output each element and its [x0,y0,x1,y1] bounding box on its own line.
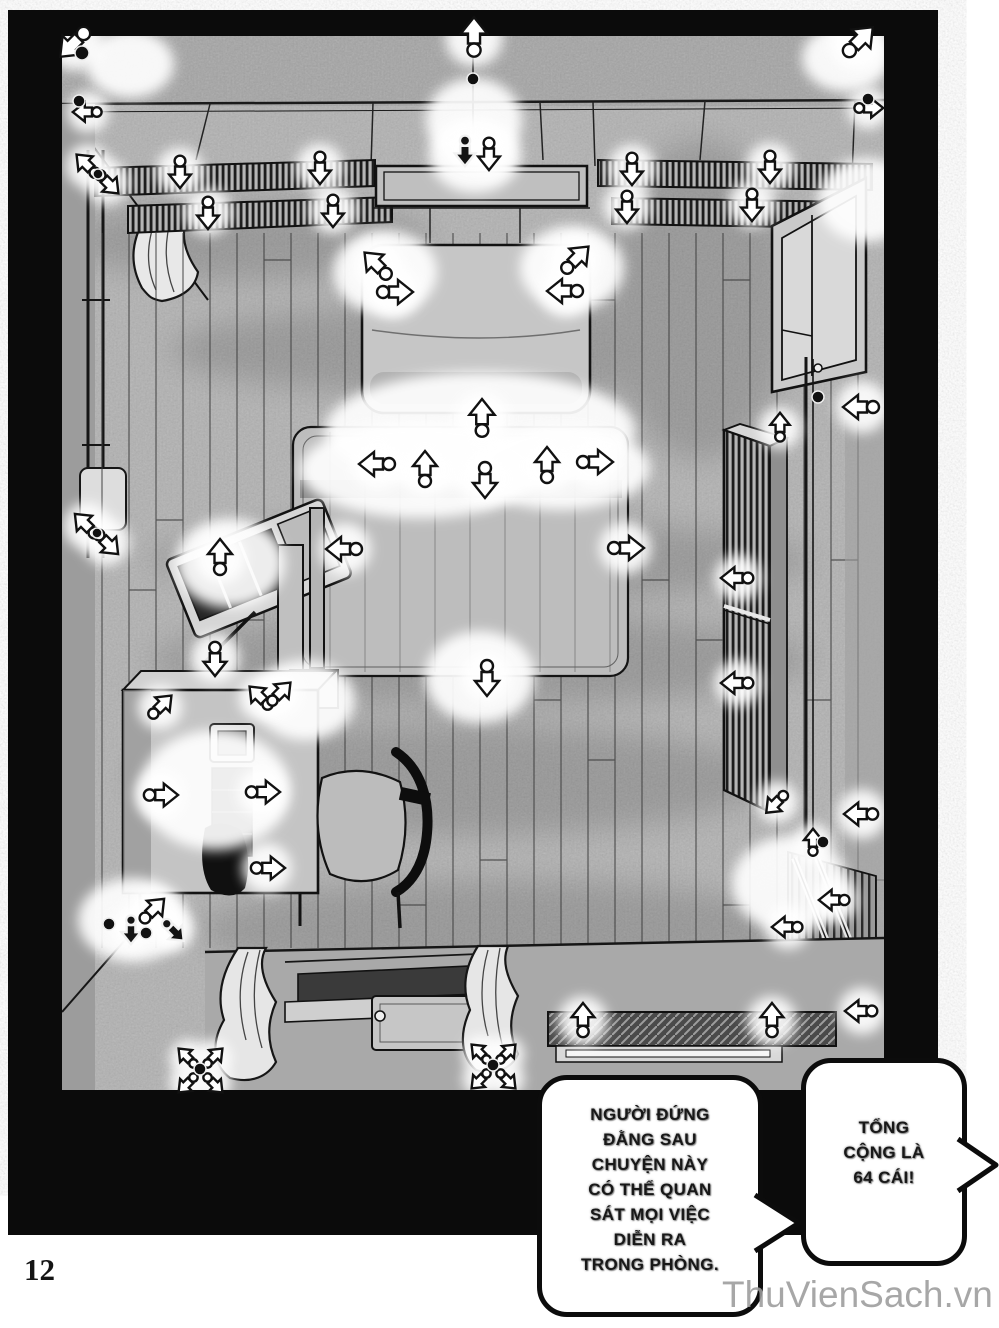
camera-dot [93,169,103,179]
bubble-text-line: 64 CÁI! [806,1165,962,1190]
page-number: 12 [24,1252,55,1288]
speech-bubble-right-text: TỔNG CỘNG LÀ 64 CÁI! [806,1063,962,1190]
bubble-text-line: NGƯỜI ĐỨNG [542,1102,758,1127]
camera-dot [487,1059,499,1071]
bubble-text-line: CÓ THỂ QUAN [542,1177,758,1202]
watermark: ThuVienSach.vn [722,1274,993,1316]
camera-dot [140,927,152,939]
speech-bubble-right: TỔNG CỘNG LÀ 64 CÁI! [801,1058,967,1266]
camera-dot [103,918,115,930]
camera-dot [812,391,824,403]
bubble-text-line: CỘNG LÀ [806,1140,962,1165]
camera-dot [75,46,89,60]
bubble-text-line: CHUYỆN NÀY [542,1152,758,1177]
camera-dot [817,836,829,848]
bubble-tail-right [955,1134,999,1196]
bubble-text-line: ĐẰNG SAU [542,1127,758,1152]
speech-bubble-left-text: NGƯỜI ĐỨNG ĐẰNG SAU CHUYỆN NÀY CÓ THỂ QU… [542,1080,758,1277]
bubble-tail-left [752,1190,804,1256]
camera-dot [73,95,85,107]
bubble-text-line: DIỄN RA [542,1227,758,1252]
bubble-text-line: TỔNG [806,1115,962,1140]
camera-dot [92,528,102,538]
camera-dot [862,93,874,105]
bubble-text-line: SÁT MỌI VIỆC [542,1202,758,1227]
camera-dot [194,1063,206,1075]
camera-dot [467,73,479,85]
